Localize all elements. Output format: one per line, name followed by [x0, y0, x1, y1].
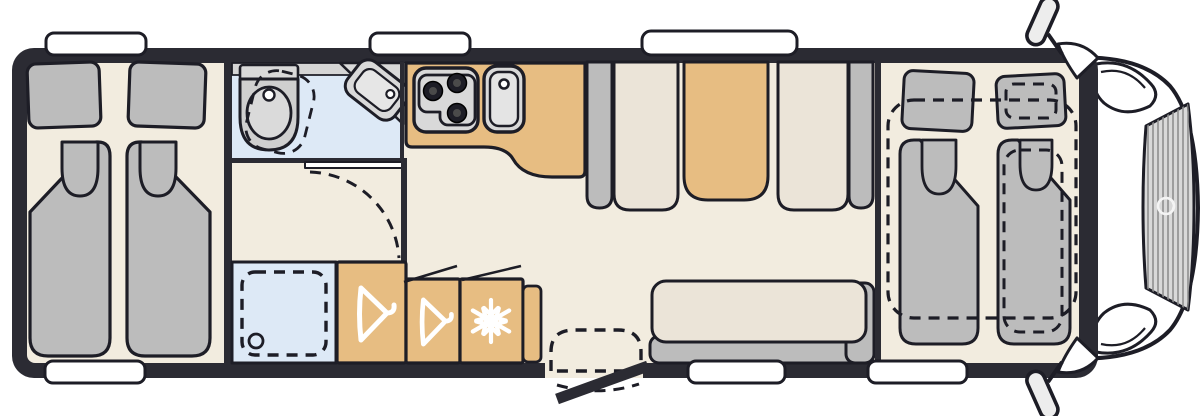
pillow-rear-left: [27, 62, 101, 128]
window-top-rear: [46, 33, 146, 55]
wardrobe-large: [337, 262, 406, 363]
floorplan-stage: Motorhome floor plan — top view: [0, 0, 1200, 416]
dinette-armrest-right: [849, 62, 873, 208]
shower: [232, 262, 336, 363]
window-top-dinette: [642, 31, 797, 55]
front-bed-left-fold: [922, 140, 956, 194]
window-bottom-sofa: [688, 361, 785, 383]
dinette-armrest-left: [587, 62, 612, 208]
front-bed-right-fold: [1020, 140, 1052, 190]
dinette-table: [684, 62, 768, 200]
wardrobe-small: [406, 279, 460, 363]
bathroom-wall-right: [400, 62, 404, 161]
burner-center: [453, 79, 461, 87]
pillow-rear-right: [128, 62, 206, 129]
dinette-seat-left: [614, 62, 678, 210]
shower-floor: [232, 262, 336, 363]
burner-center: [453, 109, 461, 117]
cabinet-stub: [523, 286, 541, 362]
floorplan-svg: [0, 0, 1200, 416]
dinette-seat-right: [778, 62, 848, 210]
bathroom: [232, 55, 414, 163]
dinette: [587, 62, 873, 210]
mirror-top: [1024, 0, 1062, 54]
rear-bed-right-fold: [140, 142, 176, 196]
fridge: [460, 279, 523, 363]
rear-bed-left-fold: [62, 142, 98, 196]
window-top-kitchen: [370, 33, 470, 55]
sofa-seat: [652, 281, 866, 342]
window-bottom-cab: [868, 361, 967, 383]
toilet-flush-button: [264, 90, 275, 101]
partition-dressing: [401, 158, 407, 264]
door-panel: [305, 162, 402, 168]
partition-cab: [875, 62, 881, 364]
sink-faucet-dot: [500, 80, 509, 89]
kitchen-sink: [484, 66, 524, 132]
stove: [414, 68, 478, 132]
burner-center: [429, 87, 437, 95]
sofa: [650, 281, 874, 363]
window-bottom-rear: [45, 361, 145, 383]
